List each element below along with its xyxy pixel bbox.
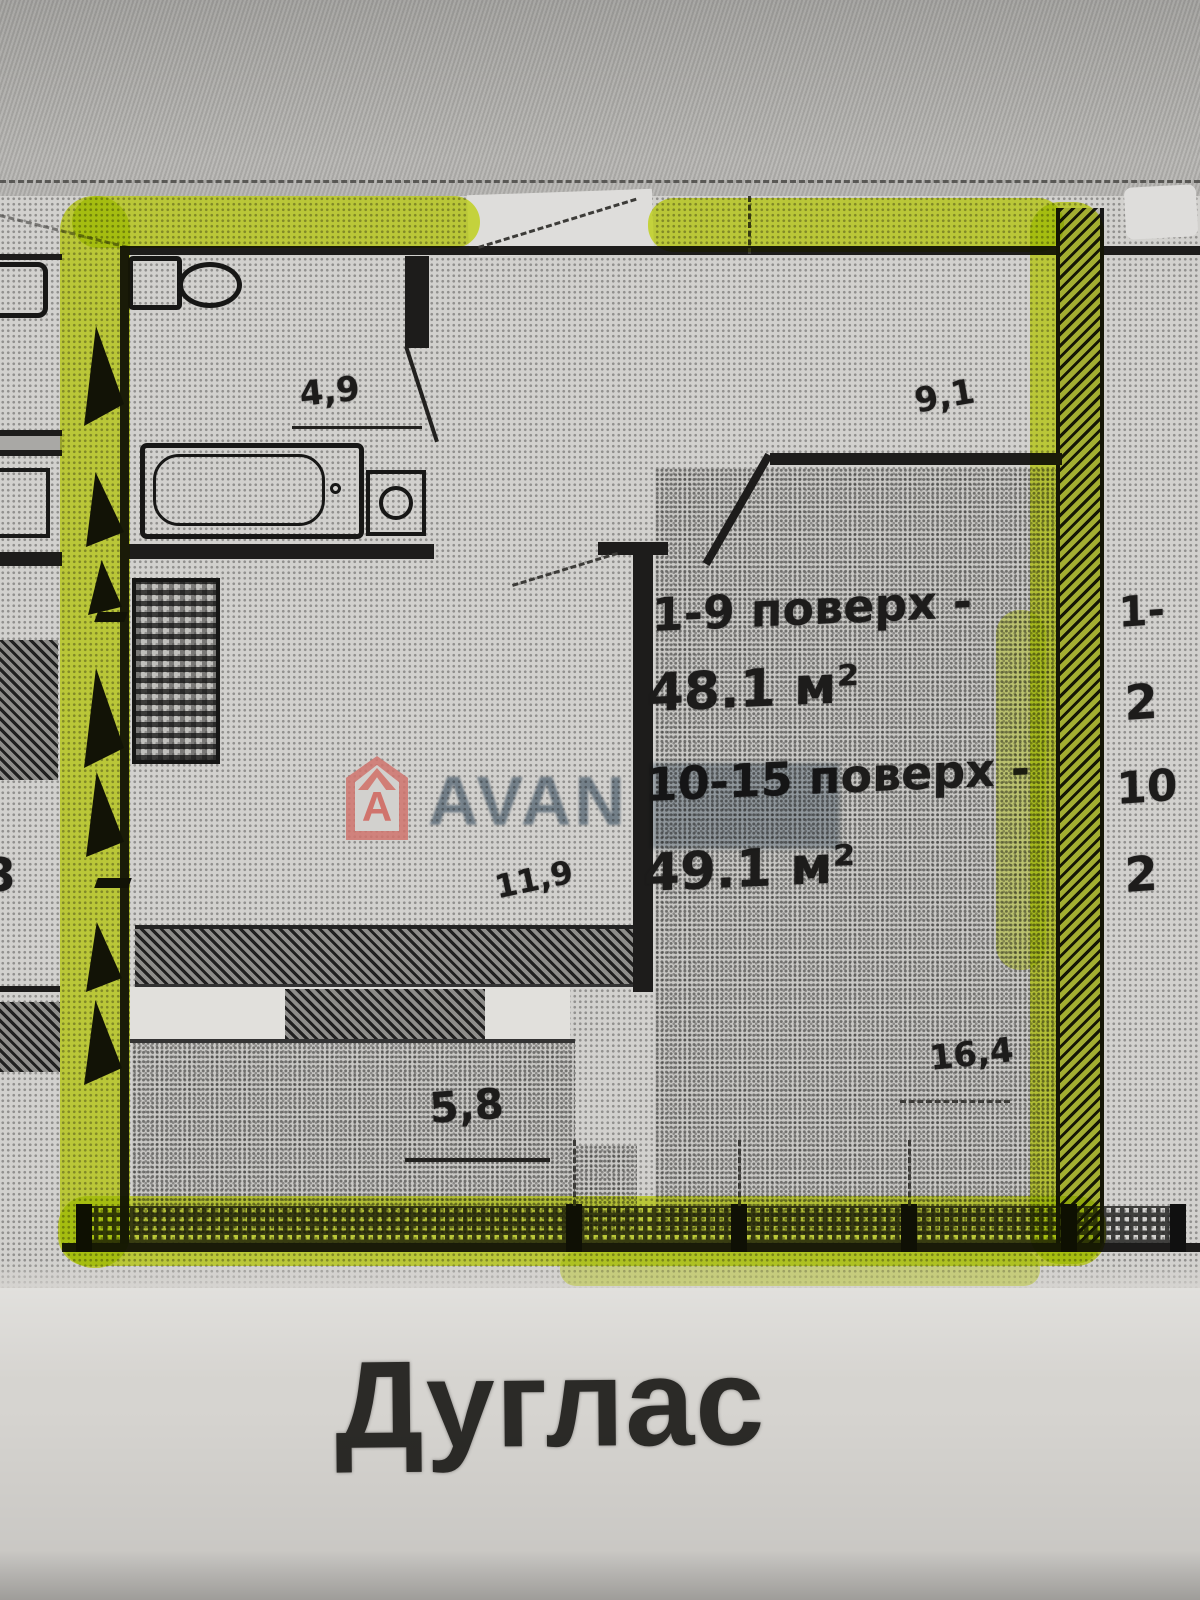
watermark-text: AVAN (428, 766, 628, 836)
balcony-outer-dashed-line (0, 180, 1200, 183)
highlight-top-stroke-left (72, 196, 480, 248)
neighbor-double-wall (0, 430, 62, 456)
dimension-underline (292, 426, 422, 429)
neighbor-text-line4: 2 (1124, 850, 1158, 900)
bedroom-top-wall (770, 453, 1062, 465)
kitchen-unit (132, 578, 220, 764)
neighbor-wall-fragment (0, 552, 62, 566)
logo-letter: A (346, 786, 408, 828)
hall-cross-wall (135, 925, 640, 987)
bathtub-inner (153, 454, 325, 526)
neighbor-wall-fragment (0, 254, 62, 260)
window-post (1170, 1204, 1186, 1252)
watermark-blur-band (650, 763, 840, 849)
living-room-top-line (130, 1039, 575, 1043)
dimension-living: 5,8 (428, 1083, 505, 1130)
toilet-tank (128, 256, 182, 310)
building-name: Дуглас (334, 1340, 765, 1468)
floors-low-area: 48.1 м² (648, 659, 860, 720)
bathroom-wall-stub (405, 256, 429, 348)
sink-basin (379, 486, 413, 520)
neighbor-hatch-block (0, 1002, 60, 1072)
bathroom-bottom-wall (122, 544, 434, 559)
floors-low-label: 1-9 поверх - (652, 578, 973, 638)
dimension-bedroom-bottom: 16,4 (928, 1033, 1015, 1076)
neighbor-text-line1: 1- (1118, 589, 1165, 634)
brand-logo-icon: A (346, 756, 408, 840)
neighbor-fixture-fragment (0, 468, 50, 538)
dimension-bathroom: 4,9 (298, 372, 361, 412)
paper-top-band (0, 0, 1200, 196)
dimension-bedroom-top: 9,1 (912, 375, 977, 419)
masonry-hatched-segment (285, 989, 485, 1039)
bathtub-drain (330, 483, 341, 494)
highlight-right-smear (996, 610, 1046, 970)
left-edge-partial-text: 3 (0, 852, 16, 898)
dimension-underline (405, 1158, 550, 1162)
neighbor-wall-fragment (0, 986, 60, 992)
masonry-white-band (130, 987, 570, 1041)
dimension-dashes (900, 1100, 1010, 1103)
neighbor-top-wall (1104, 246, 1200, 255)
toilet-bowl (178, 262, 242, 308)
highlight-top-stroke-right (648, 198, 1064, 252)
paper-light-patch (1124, 184, 1199, 240)
neighbor-text-line2: 2 (1124, 678, 1158, 728)
central-wall-t-cap (598, 542, 668, 555)
neighbor-text-line3: 10 (1116, 764, 1178, 812)
neighbor-hatch-block (0, 640, 58, 780)
highlight-left-stroke (60, 196, 130, 1268)
neighbor-fixture-fragment (0, 262, 48, 318)
highlight-bottom-smear (560, 1252, 1040, 1286)
floor-plan-photo: 1-9 поверх - 48.1 м² 10-15 поверх - 49.1… (0, 0, 1200, 1600)
